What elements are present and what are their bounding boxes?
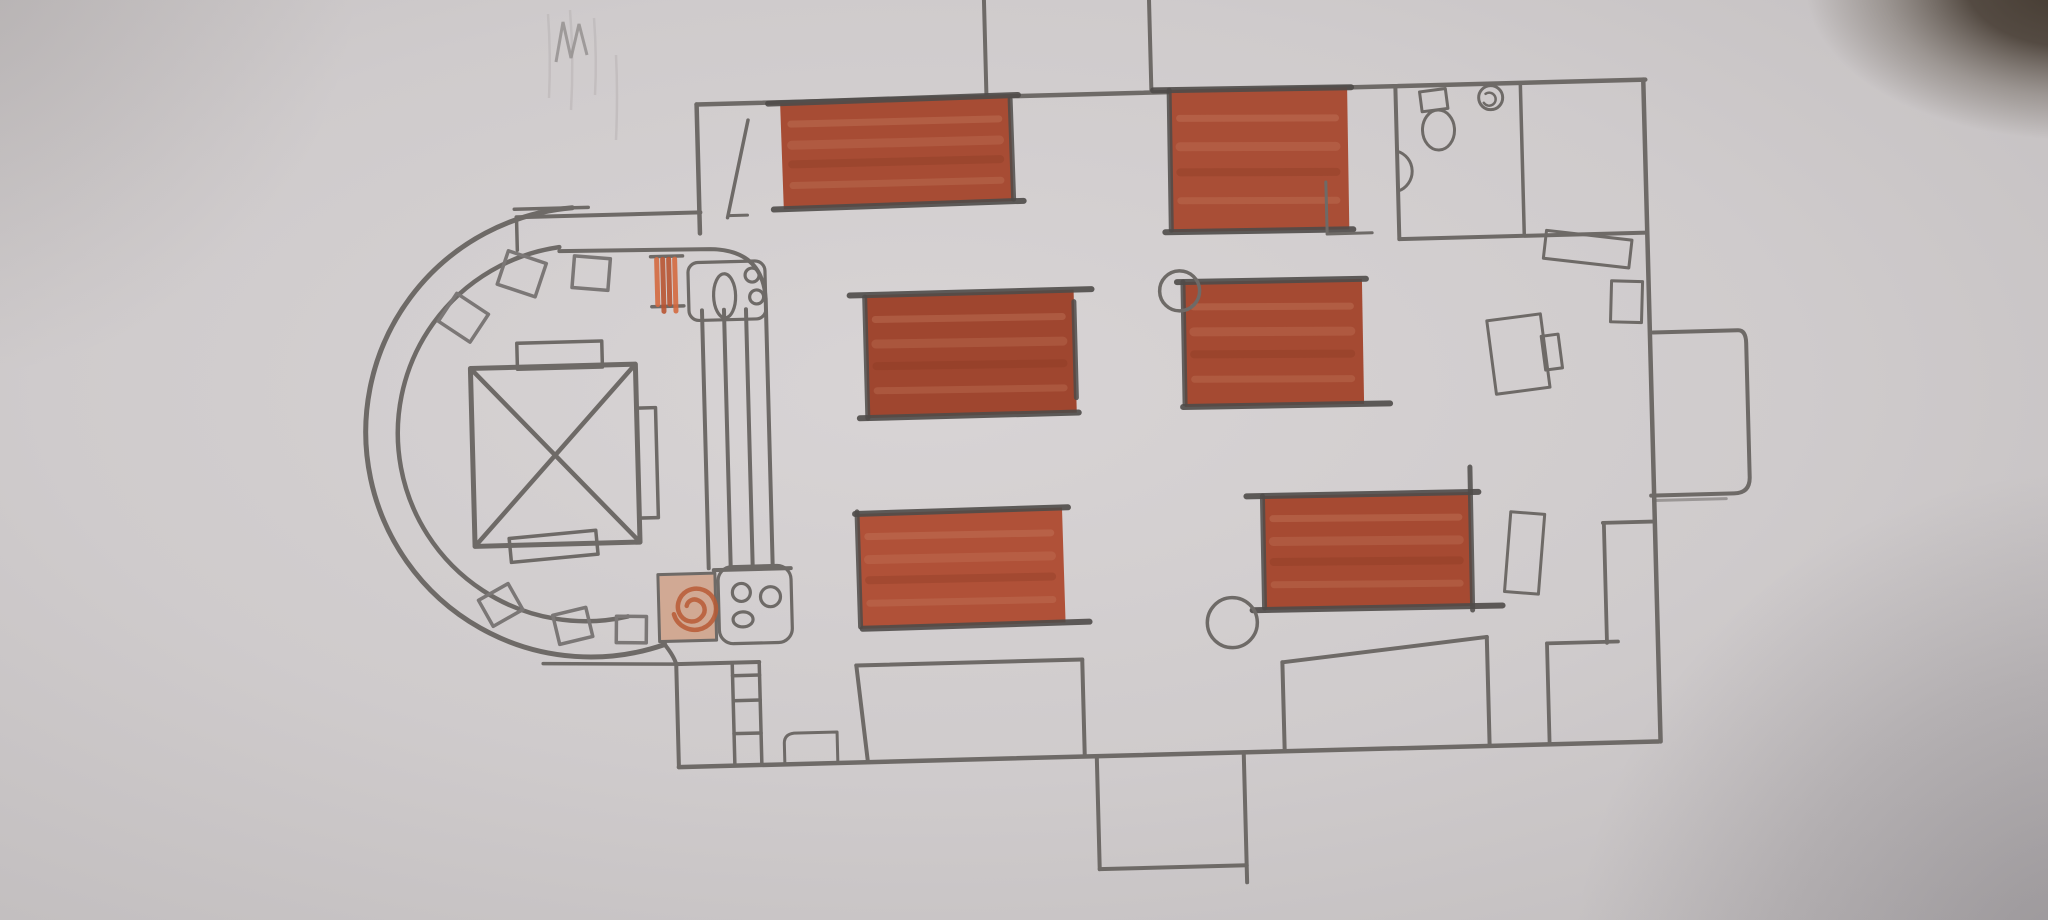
heater-orange-stroke: [663, 259, 664, 311]
shaft-top-wall: [1603, 522, 1653, 523]
pew-border-left: [865, 297, 868, 418]
crayon-streak: [1274, 581, 1460, 587]
bathroom-door-swing: [1327, 233, 1372, 234]
crayon-streak: [1273, 538, 1459, 544]
red-pew: [1153, 87, 1353, 232]
crayon-streak: [876, 361, 1063, 368]
pew-border-top: [1177, 279, 1366, 282]
red-pew-fill: [857, 507, 1066, 628]
pew-border-left: [1262, 496, 1264, 608]
pew-border-bottom: [1183, 403, 1390, 407]
crayon-streak: [1273, 515, 1459, 521]
crayon-streak: [875, 315, 1062, 322]
crayon-streak: [876, 339, 1063, 346]
crayon-streak: [1194, 352, 1351, 357]
red-pew-fill: [1169, 87, 1349, 232]
pew-border-bottom: [1165, 229, 1353, 232]
tower-wall-right: [1149, 0, 1152, 93]
narthex-top-wall-outer: [514, 207, 588, 209]
pew-border-top: [1153, 87, 1351, 90]
red-pew: [1177, 278, 1390, 407]
narthex-wall-stub: [516, 217, 517, 250]
pew-border-right: [1074, 302, 1077, 398]
crayon-streak: [1180, 144, 1336, 148]
floor-plan-drawing: [0, 0, 2048, 920]
heater-orange-stroke: [657, 260, 658, 305]
bathroom-door-jamb: [1326, 182, 1327, 234]
red-pew: [850, 289, 1095, 418]
spiral-stove: [658, 573, 717, 641]
crayon-streak: [868, 554, 1051, 562]
heater-frame-top: [651, 256, 683, 257]
pew-border-right: [1010, 99, 1013, 199]
crayon-streak: [1193, 304, 1350, 309]
red-pew-fill: [780, 95, 1014, 209]
photo-of-floor-plan: [0, 0, 2048, 920]
red-pew: [768, 95, 1024, 210]
red-pew: [855, 505, 1090, 629]
red-pew-fill: [1183, 279, 1364, 407]
stair-rung: [733, 675, 760, 676]
crayon-streak: [1180, 116, 1336, 120]
bottom-room-right-west-wall: [1282, 662, 1284, 750]
stair-room-left-wall: [676, 664, 679, 767]
bottom-room-left-east-wall: [1082, 660, 1085, 756]
step-left-wall: [1547, 643, 1550, 743]
bottom-room-right-east-wall: [1487, 637, 1490, 745]
tower-wall-left: [984, 0, 987, 97]
stair-rung: [733, 700, 760, 701]
red-pew-fill: [865, 290, 1077, 418]
red-pew-fill: [1262, 492, 1472, 610]
stair-rung: [734, 733, 761, 734]
pew-border-right: [1470, 467, 1473, 610]
crayon-streak: [1195, 377, 1352, 382]
pew-border-left: [1169, 90, 1171, 230]
crayon-streak: [1180, 170, 1336, 174]
crayon-streak: [1194, 329, 1351, 334]
heater-orange-stroke: [675, 259, 676, 311]
heater-orange-stroke: [669, 259, 670, 304]
crayon-streak: [1181, 198, 1337, 202]
pew-border-left: [1183, 282, 1185, 404]
annex-double-stroke: [1654, 499, 1726, 501]
stair-room-top-wall: [676, 662, 759, 664]
step-top-wall: [1547, 642, 1618, 644]
crayon-streak: [877, 386, 1064, 393]
crayon-streak: [1274, 558, 1460, 564]
